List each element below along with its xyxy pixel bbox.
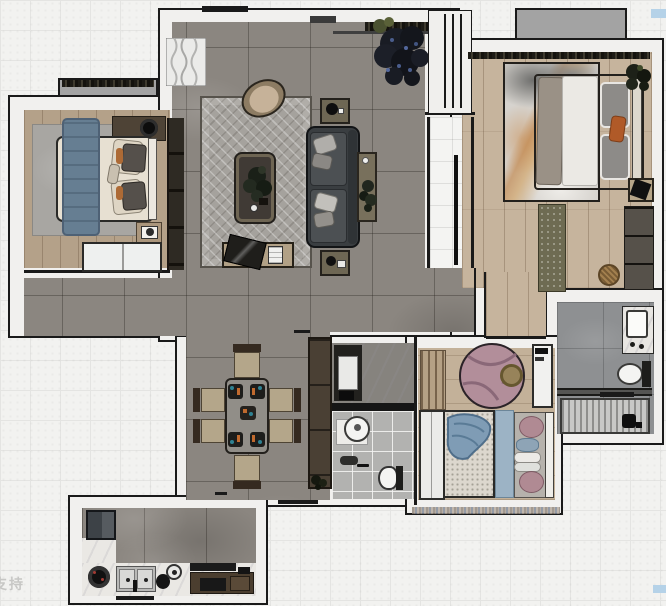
master-plant xyxy=(620,60,654,94)
master-runner-rug xyxy=(538,204,566,292)
media-item xyxy=(268,246,283,264)
dining-chair-left2 xyxy=(201,419,225,443)
kids-pillow-pink-1 xyxy=(519,416,544,438)
wall-line-hallway-left xyxy=(427,117,430,268)
artifact-blue-bottom-right xyxy=(653,585,666,593)
tv-wall-cabinet xyxy=(167,118,184,270)
kids-noise-strip xyxy=(412,507,560,514)
wall-line-nook-west2 xyxy=(484,272,486,338)
kitchen-faucet xyxy=(133,580,137,592)
wall-tick-living-south xyxy=(294,330,310,333)
dining-chair-right1-back xyxy=(294,388,301,412)
dining-wall-tick xyxy=(215,492,227,495)
dining-chair-top xyxy=(234,352,260,378)
master-wardrobe-panels xyxy=(624,206,654,290)
side-table-bottom-tray xyxy=(337,260,346,268)
dining-chair-right2 xyxy=(269,419,293,443)
side-table-top-tray xyxy=(326,103,338,115)
bedroom2-pillow-orange-2 xyxy=(116,186,123,200)
dining-chair-left1 xyxy=(201,388,225,412)
planter-strip-bedroom2-bay xyxy=(62,80,154,87)
dining-chair-left1-back xyxy=(193,388,200,412)
wall-bar-top-1 xyxy=(202,6,248,12)
place-setting-4 xyxy=(250,432,265,447)
dining-chair-left2-back xyxy=(193,419,200,443)
sofa-backrest xyxy=(348,130,357,244)
kitchen-cooktop xyxy=(200,578,226,591)
kitchen-cabinet-door xyxy=(230,576,250,591)
kitchen-fridge-door xyxy=(102,512,114,538)
smallbath-divider xyxy=(332,403,414,411)
kitchen-counter-item xyxy=(238,567,250,574)
bedroom2-dresser-divider xyxy=(122,244,124,270)
wall-line-nook-south xyxy=(486,336,546,339)
side-table-top-cup xyxy=(338,108,344,114)
kitchen-gas-burner xyxy=(88,566,110,588)
wall-line-hallway-right xyxy=(471,117,474,268)
kids-wardrobe-line xyxy=(431,412,432,498)
bedroom2-pillow-dark-1 xyxy=(121,143,147,173)
smallbath-toilet-bowl xyxy=(378,466,398,490)
hallway-door-leaf xyxy=(454,155,458,265)
bath-toilet-bowl xyxy=(617,363,643,385)
shower-fixture xyxy=(622,414,636,428)
place-setting-2 xyxy=(250,384,265,399)
shower-curb-bar xyxy=(600,392,634,397)
place-setting-3 xyxy=(228,432,243,447)
center-setting xyxy=(240,406,256,420)
smallbath-basin-tap xyxy=(354,424,361,431)
kids-blue-runner xyxy=(495,410,514,498)
bedroom2-pillow-orange-1 xyxy=(116,148,123,164)
entry-door-line-3 xyxy=(460,14,462,108)
bath-sink xyxy=(626,310,648,338)
floorplan-canvas[interactable]: 支持 xyxy=(0,0,666,606)
entry-door-line-1 xyxy=(444,14,446,108)
bedroom2-blue-throw xyxy=(62,118,100,236)
master-curtain-strip xyxy=(468,52,650,59)
kitchen-range-hood xyxy=(190,563,236,571)
dining-chair-top-back xyxy=(233,344,261,352)
kids-wardrobe-planks xyxy=(420,350,446,410)
entry-door-line-2 xyxy=(452,14,454,108)
master-duvet xyxy=(562,76,598,186)
bath-sink-dots xyxy=(630,342,635,347)
master-blanket xyxy=(536,77,565,186)
smallbath-black-fixture xyxy=(339,391,354,400)
kitchen-burner-dot2 xyxy=(101,578,104,581)
dining-window-bar xyxy=(278,500,318,504)
dining-chair-bottom xyxy=(234,455,260,481)
kids-ottoman xyxy=(500,364,523,387)
bedroom2-headboard xyxy=(148,138,157,220)
floor-master-nook xyxy=(486,272,546,338)
kids-headboard xyxy=(545,412,554,498)
kids-pillow-blue xyxy=(516,438,539,452)
side-table-bottom-vase xyxy=(326,256,336,266)
kids-white-wardrobe xyxy=(419,410,445,500)
bedroom2-book-dot xyxy=(146,228,154,236)
place-setting-1 xyxy=(228,384,243,399)
smallbath-shower-tray xyxy=(338,356,358,390)
dining-cabinet-column xyxy=(308,337,332,489)
kitchen-window-bar xyxy=(116,596,154,600)
coffee-table-bowl xyxy=(250,204,258,212)
dining-chair-right1 xyxy=(269,388,293,412)
curtain xyxy=(166,38,206,86)
artifact-blue-top-right xyxy=(651,9,666,18)
kitchen-burner-dot1 xyxy=(93,571,96,574)
large-potted-plant xyxy=(366,14,436,92)
kitchen-sink-basin-2 xyxy=(137,569,153,589)
bedroom2-speaker xyxy=(140,119,158,137)
console-cup xyxy=(362,157,369,164)
wall-line-bath-kids xyxy=(414,337,417,505)
watermark-bottom-left: 支持 xyxy=(0,574,25,594)
master-headboard xyxy=(632,78,642,186)
bath-toilet-tank xyxy=(642,361,651,387)
dining-chair-right2-back xyxy=(294,419,301,443)
master-basket xyxy=(598,264,620,286)
shower-slatted-floor xyxy=(560,398,650,434)
kids-desk-item-2 xyxy=(535,357,544,361)
kids-pillow-pink-2 xyxy=(519,471,544,493)
console-plant xyxy=(359,176,377,214)
wall-bar-top-2 xyxy=(310,16,336,23)
smallbath-toilet-tank xyxy=(396,466,403,490)
dining-chair-bottom-back xyxy=(233,481,261,489)
kids-desk-item-1 xyxy=(535,348,548,354)
kids-blue-drape xyxy=(444,412,494,464)
coffee-table-box xyxy=(259,198,268,205)
wall-line-nook-west1 xyxy=(474,268,476,336)
smallbath-mat xyxy=(340,456,358,465)
dining-cabinet-plant xyxy=(308,472,330,492)
bedroom2-pillow-dark-2 xyxy=(121,181,147,211)
entry-door-unit xyxy=(428,10,472,114)
kitchen-plate xyxy=(166,564,182,580)
